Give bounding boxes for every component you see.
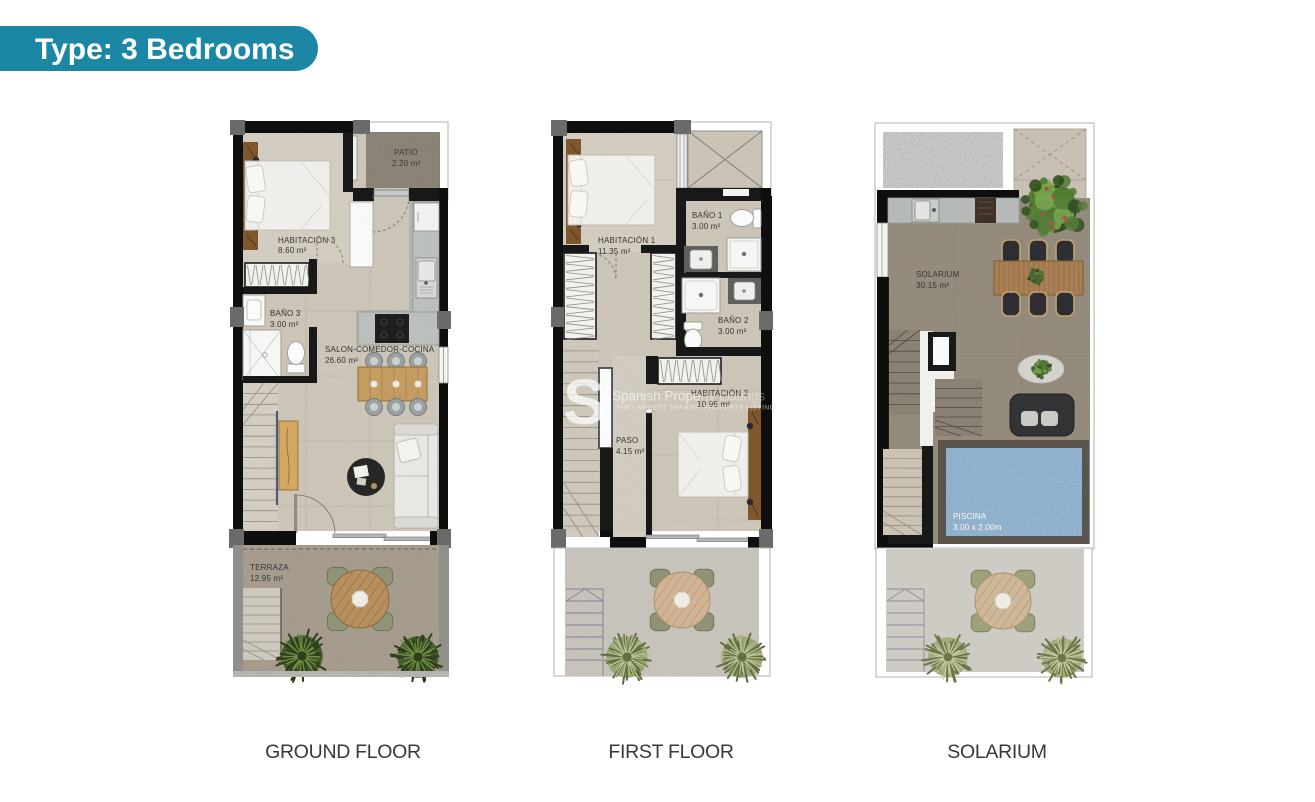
svg-text:S: S [563,366,606,438]
svg-text:Type: 3 Bedrooms: Type: 3 Bedrooms [35,33,295,66]
svg-text:Spanish Property Listings: Spanish Property Listings [612,389,765,404]
svg-text:SOLARIUM: SOLARIUM [947,741,1046,763]
svg-text:THE LARGEST SPANISH PROPERTY L: THE LARGEST SPANISH PROPERTY LISTING [616,405,775,412]
svg-text:GROUND FLOOR: GROUND FLOOR [265,741,421,763]
svg-text:FIRST FLOOR: FIRST FLOOR [608,741,733,763]
